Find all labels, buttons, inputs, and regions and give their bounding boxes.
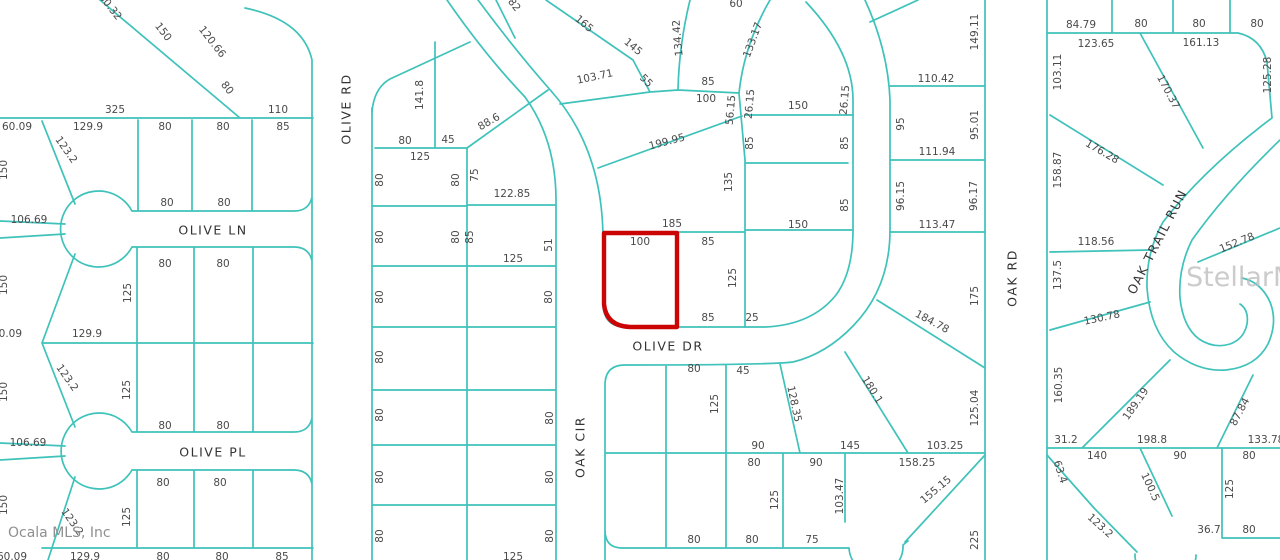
dimension-label: 110 — [268, 104, 288, 116]
plat-map: OLIVE LNOLIVE PLOLIVE DROLIVE RDOAK CIRO… — [0, 0, 1280, 560]
parcel-lines-left-block — [0, 0, 372, 560]
dimension-label: 184.78 — [913, 308, 951, 336]
dimension-label: 90 — [809, 457, 822, 469]
dimension-label: 125.28 — [1262, 57, 1274, 94]
dimension-label: 113.47 — [919, 219, 956, 231]
dimension-label: 80 — [216, 121, 229, 133]
dimension-label: 150 — [0, 382, 10, 402]
dimension-label: 80 — [544, 529, 556, 542]
dimension-label: 26.15 — [838, 85, 853, 116]
dimension-label: 100 — [696, 93, 716, 105]
dimension-label: 80 — [544, 470, 556, 483]
dimension-label: 225 — [969, 530, 981, 550]
dimension-label: 55 — [637, 72, 655, 90]
dimension-label: 80 — [374, 290, 386, 303]
dimension-label: 80 — [687, 534, 700, 546]
dimension-label: 122.85 — [494, 188, 531, 200]
dimension-label: 125 — [727, 268, 739, 288]
dimension-label: 80 — [374, 350, 386, 363]
dimension-label: 51 — [543, 238, 555, 251]
dimension-label: 125 — [1224, 479, 1236, 499]
dimension-label: 106.69 — [10, 437, 47, 449]
dimension-label: 125 — [503, 253, 523, 265]
dimension-label: 60.32 — [96, 0, 124, 23]
dimension-label: 155.15 — [918, 474, 954, 507]
dimension-label: 128.35 — [784, 385, 803, 423]
dimension-label: 75 — [469, 168, 481, 181]
watermark-ocala-mls: Ocala MLS, Inc — [8, 525, 111, 541]
dimension-label: 106.69 — [11, 214, 48, 226]
dimension-label: 80 — [158, 121, 171, 133]
dimension-label: 125 — [121, 380, 133, 400]
dimension-label: 129.9 — [70, 551, 100, 560]
dimension-label: 60.09 — [0, 328, 22, 340]
dimension-label: 85 — [701, 76, 714, 88]
dimension-label: 85 — [839, 136, 851, 149]
dimension-label: 325 — [105, 104, 125, 116]
dimension-label: 100 — [630, 236, 650, 248]
dimension-label: 125 — [121, 507, 133, 527]
dimension-label: 80 — [374, 529, 386, 542]
dimension-label: 85 — [744, 136, 756, 149]
dimension-label: 80 — [216, 258, 229, 270]
dimension-label: 150 — [152, 20, 174, 43]
dimension-label: 123.2 — [53, 362, 80, 394]
labels-layer: OLIVE LNOLIVE PLOLIVE DROLIVE RDOAK CIRO… — [0, 0, 1280, 560]
dimension-label: 84.79 — [1066, 19, 1096, 31]
dimension-label: 103.11 — [1052, 54, 1064, 91]
dimension-label: 90 — [1173, 450, 1186, 462]
dimension-label: 80 — [543, 290, 555, 303]
dimension-label: 120.66 — [196, 24, 228, 61]
dimension-label: 60.09 — [2, 121, 32, 133]
dimension-label: 129.9 — [73, 121, 103, 133]
dimension-label: 96.15 — [895, 181, 907, 211]
dimension-label: 45 — [736, 365, 749, 377]
dimension-label: 111.94 — [919, 146, 956, 158]
dimension-label: 36.7 — [1197, 524, 1220, 536]
dimension-label: 133.78 — [1248, 434, 1280, 446]
dimension-label: 125 — [122, 283, 134, 303]
dimension-label: 125 — [503, 551, 523, 560]
dimension-label: 80 — [158, 420, 171, 432]
street-name-label: OLIVE LN — [178, 223, 247, 238]
dimension-label: 75 — [805, 534, 818, 546]
dimension-label: 80 — [398, 135, 411, 147]
street-name-label: OAK CIR — [573, 416, 588, 478]
dimension-label: 80 — [156, 551, 169, 560]
dimension-label: 80 — [1134, 18, 1147, 30]
dimension-label: 158.87 — [1052, 152, 1064, 189]
dimension-label: 198.8 — [1137, 434, 1167, 446]
dimension-label: 176.28 — [1083, 138, 1121, 167]
dimension-label: 60.09 — [0, 551, 27, 560]
dimension-label: 87.84 — [1228, 396, 1253, 428]
dimension-label: 130.78 — [1083, 308, 1121, 327]
dimension-label: 150 — [0, 160, 10, 180]
dimension-label: 125 — [769, 490, 781, 510]
dimension-label: 125 — [709, 394, 721, 414]
dimension-label: 123.2 — [52, 134, 79, 166]
street-name-label: OLIVE PL — [179, 445, 246, 460]
parcel-lines-middle-strip — [372, 0, 853, 560]
dimension-label: 137.5 — [1052, 260, 1064, 290]
dimension-label: 150 — [788, 219, 808, 231]
dimension-label: 31.2 — [1054, 434, 1077, 446]
dimension-label: 150 — [0, 495, 10, 515]
dimension-label: 185 — [662, 218, 682, 230]
dimension-label: 85 — [275, 551, 288, 560]
dimension-label: 123.65 — [1078, 38, 1115, 50]
dimension-label: 25 — [745, 312, 758, 324]
dimension-label: 158.25 — [899, 457, 936, 469]
dimension-label: 90 — [751, 440, 764, 452]
dimension-label: 80 — [216, 420, 229, 432]
dimension-label: 141.8 — [414, 80, 426, 110]
dimension-label: 133.17 — [741, 21, 765, 60]
dimension-label: 80 — [1242, 450, 1255, 462]
dimension-label: 80 — [217, 197, 230, 209]
dimension-label: 80 — [160, 197, 173, 209]
dimension-label: 125.04 — [969, 389, 981, 426]
dimension-label: 134.42 — [670, 19, 685, 57]
dimension-label: 129.9 — [72, 328, 102, 340]
parcel-lines-oak-rd — [890, 0, 1047, 560]
dimension-label: 80 — [747, 457, 760, 469]
dimension-label: 80 — [687, 363, 700, 375]
dimension-label: 80 — [374, 408, 386, 421]
dimension-label: 170.37 — [1154, 73, 1182, 111]
dimension-label: 135 — [723, 172, 735, 192]
dimension-label: 150 — [788, 100, 808, 112]
dimension-label: 80 — [374, 470, 386, 483]
dimension-label: 80 — [374, 230, 386, 243]
dimension-label: 80 — [450, 230, 462, 243]
dimension-label: 63.4 — [1051, 459, 1070, 485]
street-name-label: OLIVE RD — [339, 73, 354, 144]
street-name-label: OAK RD — [1005, 249, 1020, 307]
dimension-label: 88.6 — [476, 111, 503, 133]
dimension-label: 60 — [729, 0, 742, 10]
dimension-label: 110.42 — [918, 73, 955, 85]
dimension-label: 80 — [158, 258, 171, 270]
dimension-label: 82 — [505, 0, 523, 14]
dimension-label: 80 — [450, 173, 462, 186]
dimension-label: 160.35 — [1053, 367, 1065, 404]
dimension-label: 85 — [276, 121, 289, 133]
dimension-label: 95 — [895, 117, 907, 130]
dimension-label: 85 — [464, 230, 476, 243]
dimension-label: 56.15 — [724, 95, 739, 126]
dimension-label: 125 — [410, 151, 430, 163]
street-name-label: OLIVE DR — [632, 339, 703, 354]
dimension-label: 80 — [1192, 18, 1205, 30]
dimension-label: 180.1 — [859, 374, 885, 406]
dimension-label: 152.78 — [1218, 231, 1257, 256]
dimension-label: 80 — [1242, 524, 1255, 536]
dimension-label: 103.25 — [927, 440, 964, 452]
dimension-label: 199.95 — [648, 131, 687, 152]
dimension-label: 80 — [374, 173, 386, 186]
dimension-label: 150 — [0, 275, 10, 295]
dimension-label: 80 — [215, 551, 228, 560]
dimension-label: 45 — [441, 134, 454, 146]
map-canvas: OLIVE LNOLIVE PLOLIVE DROLIVE RDOAK CIRO… — [0, 0, 1280, 560]
dimension-label: 80 — [218, 79, 236, 97]
dimension-label: 80 — [156, 477, 169, 489]
dimension-label: 80 — [745, 534, 758, 546]
dimension-label: 103.47 — [834, 478, 846, 515]
dimension-label: 85 — [701, 312, 714, 324]
watermark-stellar-mls: StellarMLS — [1186, 262, 1280, 293]
dimension-label: 85 — [701, 236, 714, 248]
dimension-label: 80 — [1250, 18, 1263, 30]
dimension-label: 85 — [839, 198, 851, 211]
dimension-label: 161.13 — [1183, 37, 1220, 49]
dimension-label: 80 — [213, 477, 226, 489]
dimension-label: 118.56 — [1078, 236, 1115, 248]
dimension-label: 96.17 — [968, 181, 980, 211]
dimension-label: 140 — [1087, 450, 1107, 462]
dimension-label: 145 — [840, 440, 860, 452]
dimension-label: 175 — [969, 286, 981, 306]
dimension-label: 149.11 — [969, 14, 981, 51]
dimension-label: 95.01 — [969, 110, 981, 140]
dimension-label: 80 — [544, 411, 556, 424]
dimension-label: 103.71 — [576, 67, 614, 86]
